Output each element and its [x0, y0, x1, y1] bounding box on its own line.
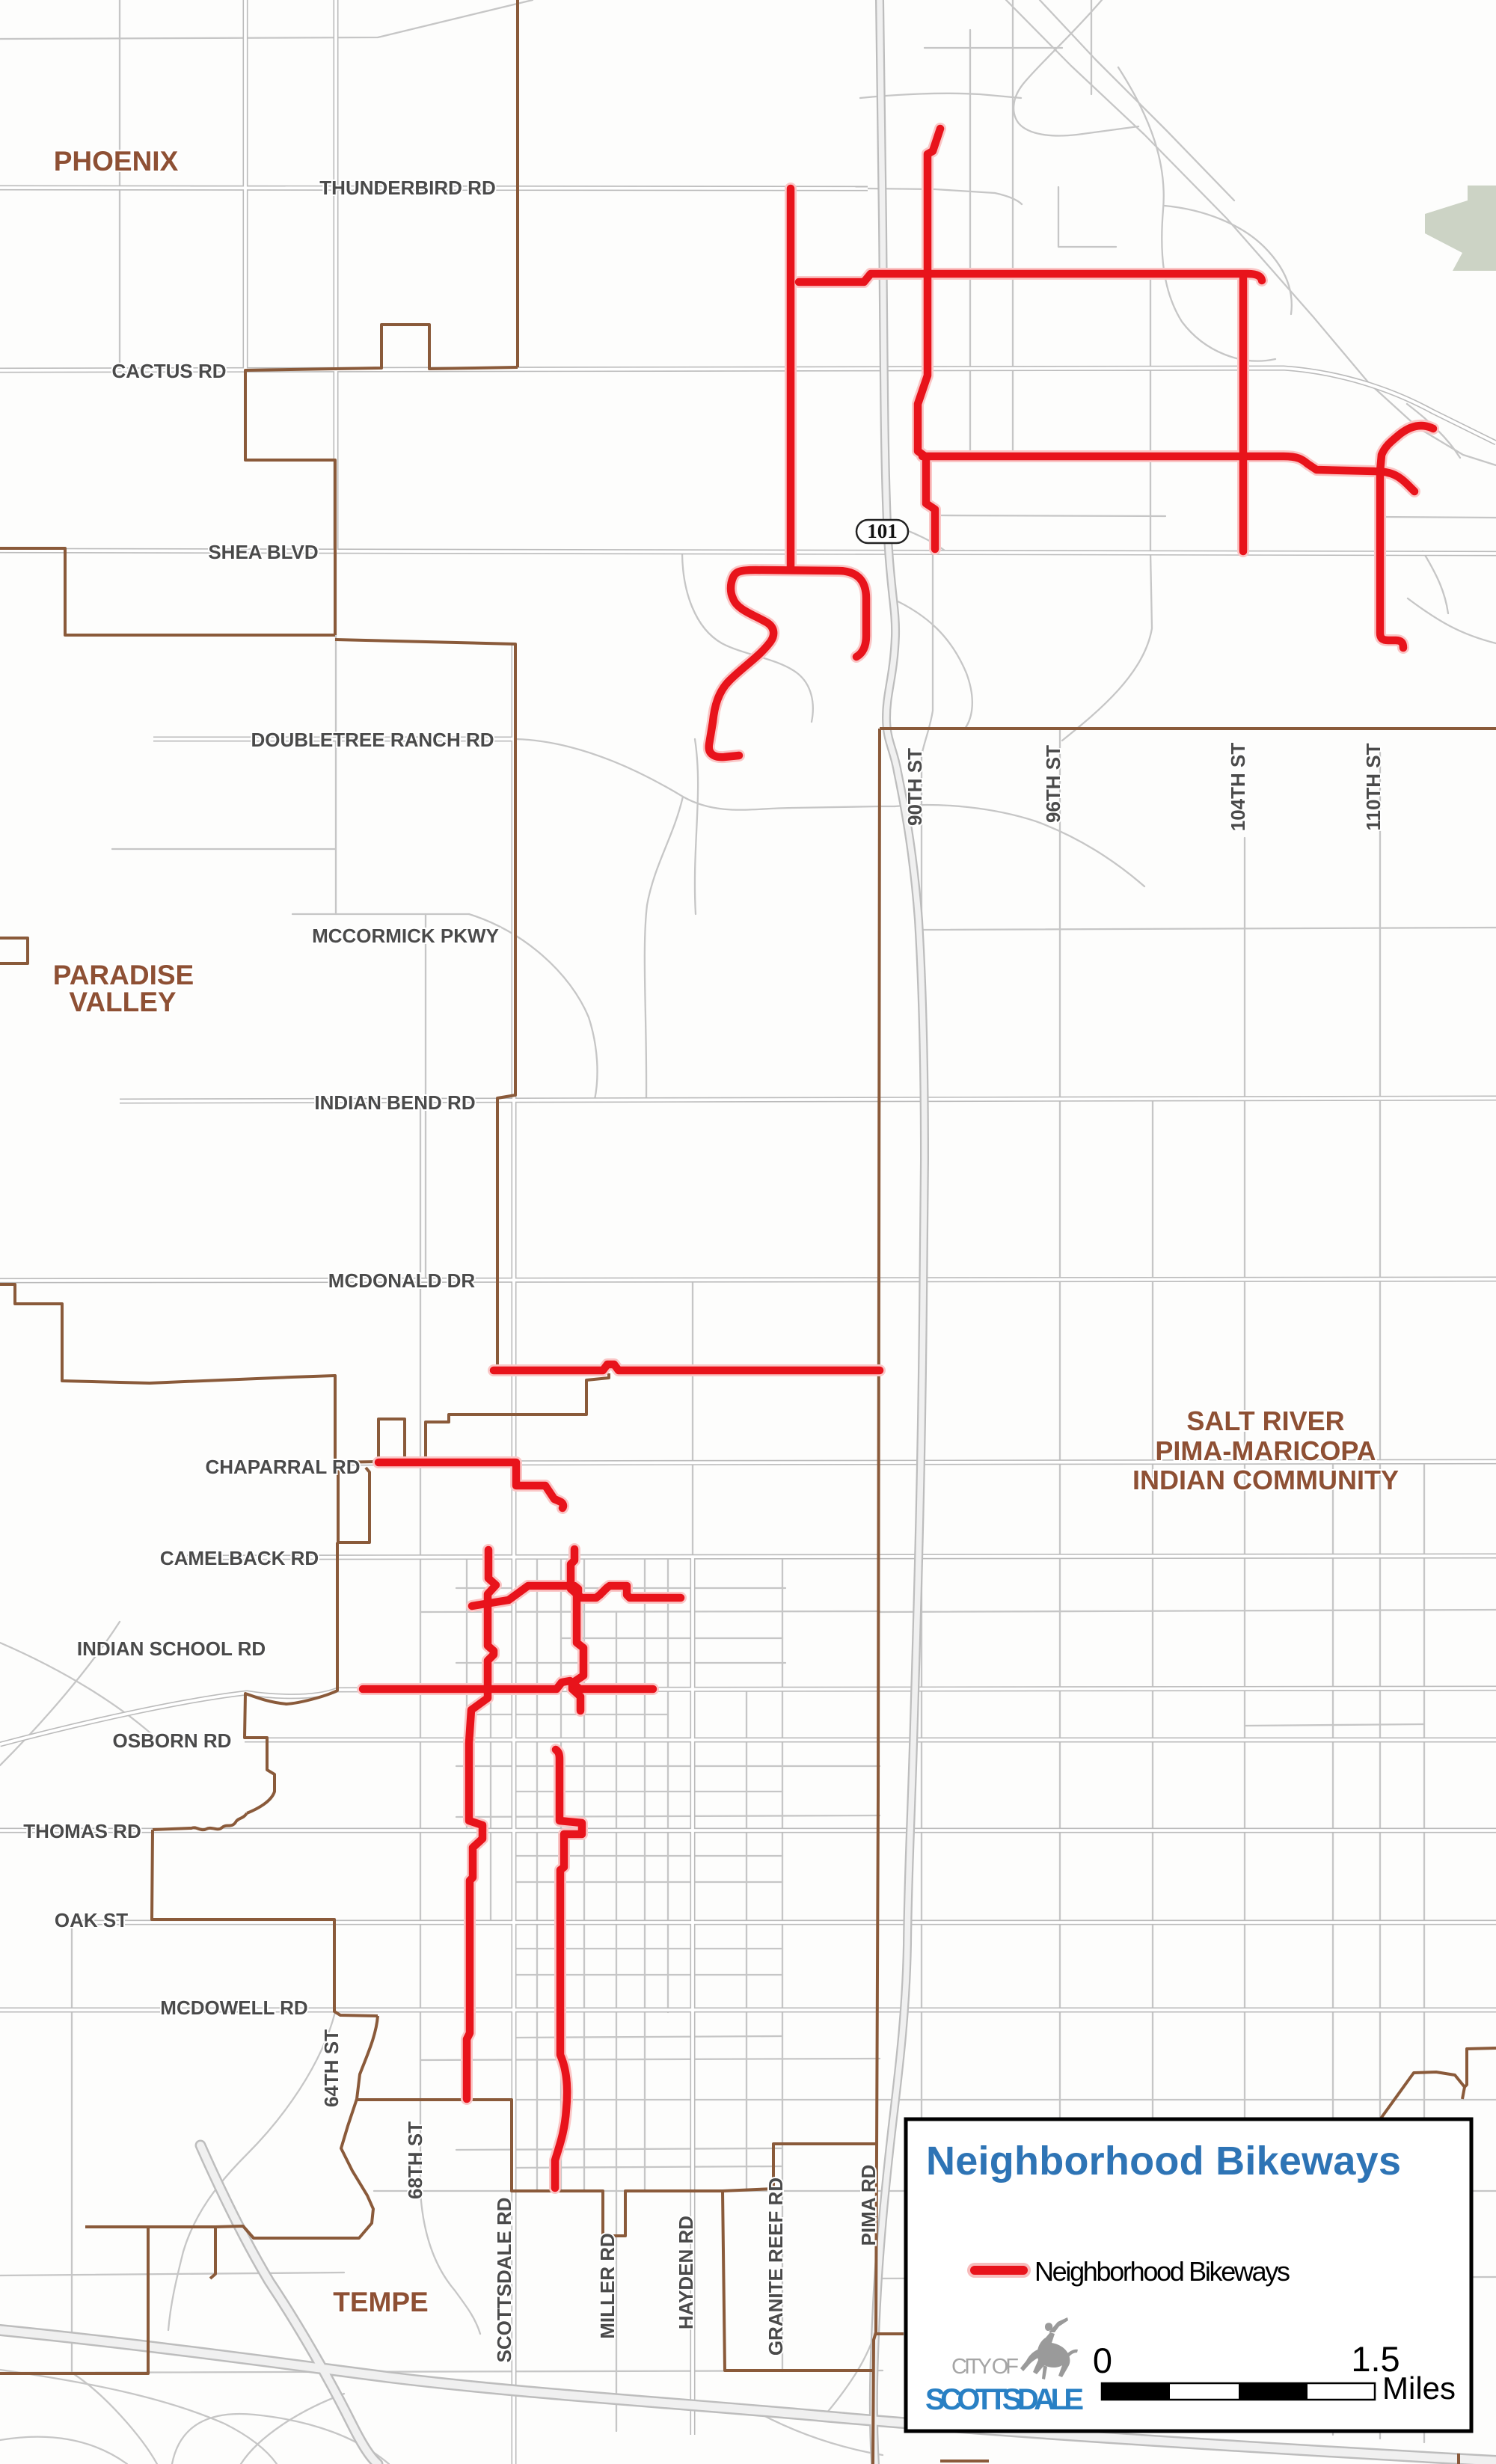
svg-text:110TH ST: 110TH ST: [1362, 743, 1385, 830]
svg-text:OSBORN RD: OSBORN RD: [113, 1729, 232, 1752]
svg-text:MCDONALD DR: MCDONALD DR: [328, 1269, 476, 1292]
svg-text:90TH ST: 90TH ST: [904, 748, 926, 826]
svg-text:101: 101: [867, 520, 898, 542]
svg-text:OAK ST: OAK ST: [55, 1909, 128, 1931]
svg-text:HAYDEN RD: HAYDEN RD: [675, 2216, 697, 2329]
svg-text:TEMPE: TEMPE: [333, 2287, 428, 2317]
svg-text:Miles: Miles: [1382, 2370, 1456, 2406]
svg-text:CAMELBACK RD: CAMELBACK RD: [160, 1547, 319, 1569]
svg-text:PIMA-MARICOPA: PIMA-MARICOPA: [1155, 1435, 1376, 1466]
svg-text:INDIAN COMMUNITY: INDIAN COMMUNITY: [1132, 1465, 1399, 1495]
svg-text:PARADISE: PARADISE: [53, 960, 194, 990]
svg-text:104TH ST: 104TH ST: [1227, 743, 1249, 832]
svg-text:64TH ST: 64TH ST: [320, 2029, 343, 2107]
svg-text:CHAPARRAL RD: CHAPARRAL RD: [205, 1456, 360, 1478]
svg-text:GRANITE REEF RD: GRANITE REEF RD: [764, 2178, 787, 2356]
svg-text:PHOENIX: PHOENIX: [54, 146, 179, 177]
svg-text:MCDOWELL RD: MCDOWELL RD: [160, 1996, 307, 2019]
svg-text:SALT RIVER: SALT RIVER: [1186, 1406, 1344, 1436]
svg-text:VALLEY: VALLEY: [69, 987, 177, 1017]
svg-text:THOMAS RD: THOMAS RD: [23, 1820, 141, 1842]
svg-text:68TH ST: 68TH ST: [404, 2121, 426, 2199]
svg-text:96TH ST: 96TH ST: [1042, 745, 1064, 823]
svg-text:SCOTTSDALE RD: SCOTTSDALE RD: [493, 2198, 515, 2363]
svg-text:CITY OF: CITY OF: [951, 2355, 1019, 2379]
svg-text:CACTUS RD: CACTUS RD: [111, 360, 226, 382]
svg-text:SHEA BLVD: SHEA BLVD: [208, 541, 318, 563]
svg-text:MILLER RD: MILLER RD: [596, 2233, 619, 2339]
svg-text:MCCORMICK PKWY: MCCORMICK PKWY: [312, 925, 499, 947]
svg-text:THUNDERBIRD RD: THUNDERBIRD RD: [319, 177, 495, 199]
svg-text:DOUBLETREE RANCH RD: DOUBLETREE RANCH RD: [251, 729, 494, 751]
svg-text:PIMA RD: PIMA RD: [857, 2165, 880, 2246]
svg-text:Neighborhood Bikeways: Neighborhood Bikeways: [926, 2139, 1401, 2183]
svg-text:Neighborhood Bikeways: Neighborhood Bikeways: [1034, 2256, 1290, 2287]
svg-text:INDIAN SCHOOL RD: INDIAN SCHOOL RD: [77, 1637, 266, 1660]
svg-text:INDIAN BEND RD: INDIAN BEND RD: [314, 1091, 475, 1114]
svg-text:SCOTTSDALE: SCOTTSDALE: [925, 2383, 1084, 2416]
svg-text:0: 0: [1093, 2341, 1112, 2380]
